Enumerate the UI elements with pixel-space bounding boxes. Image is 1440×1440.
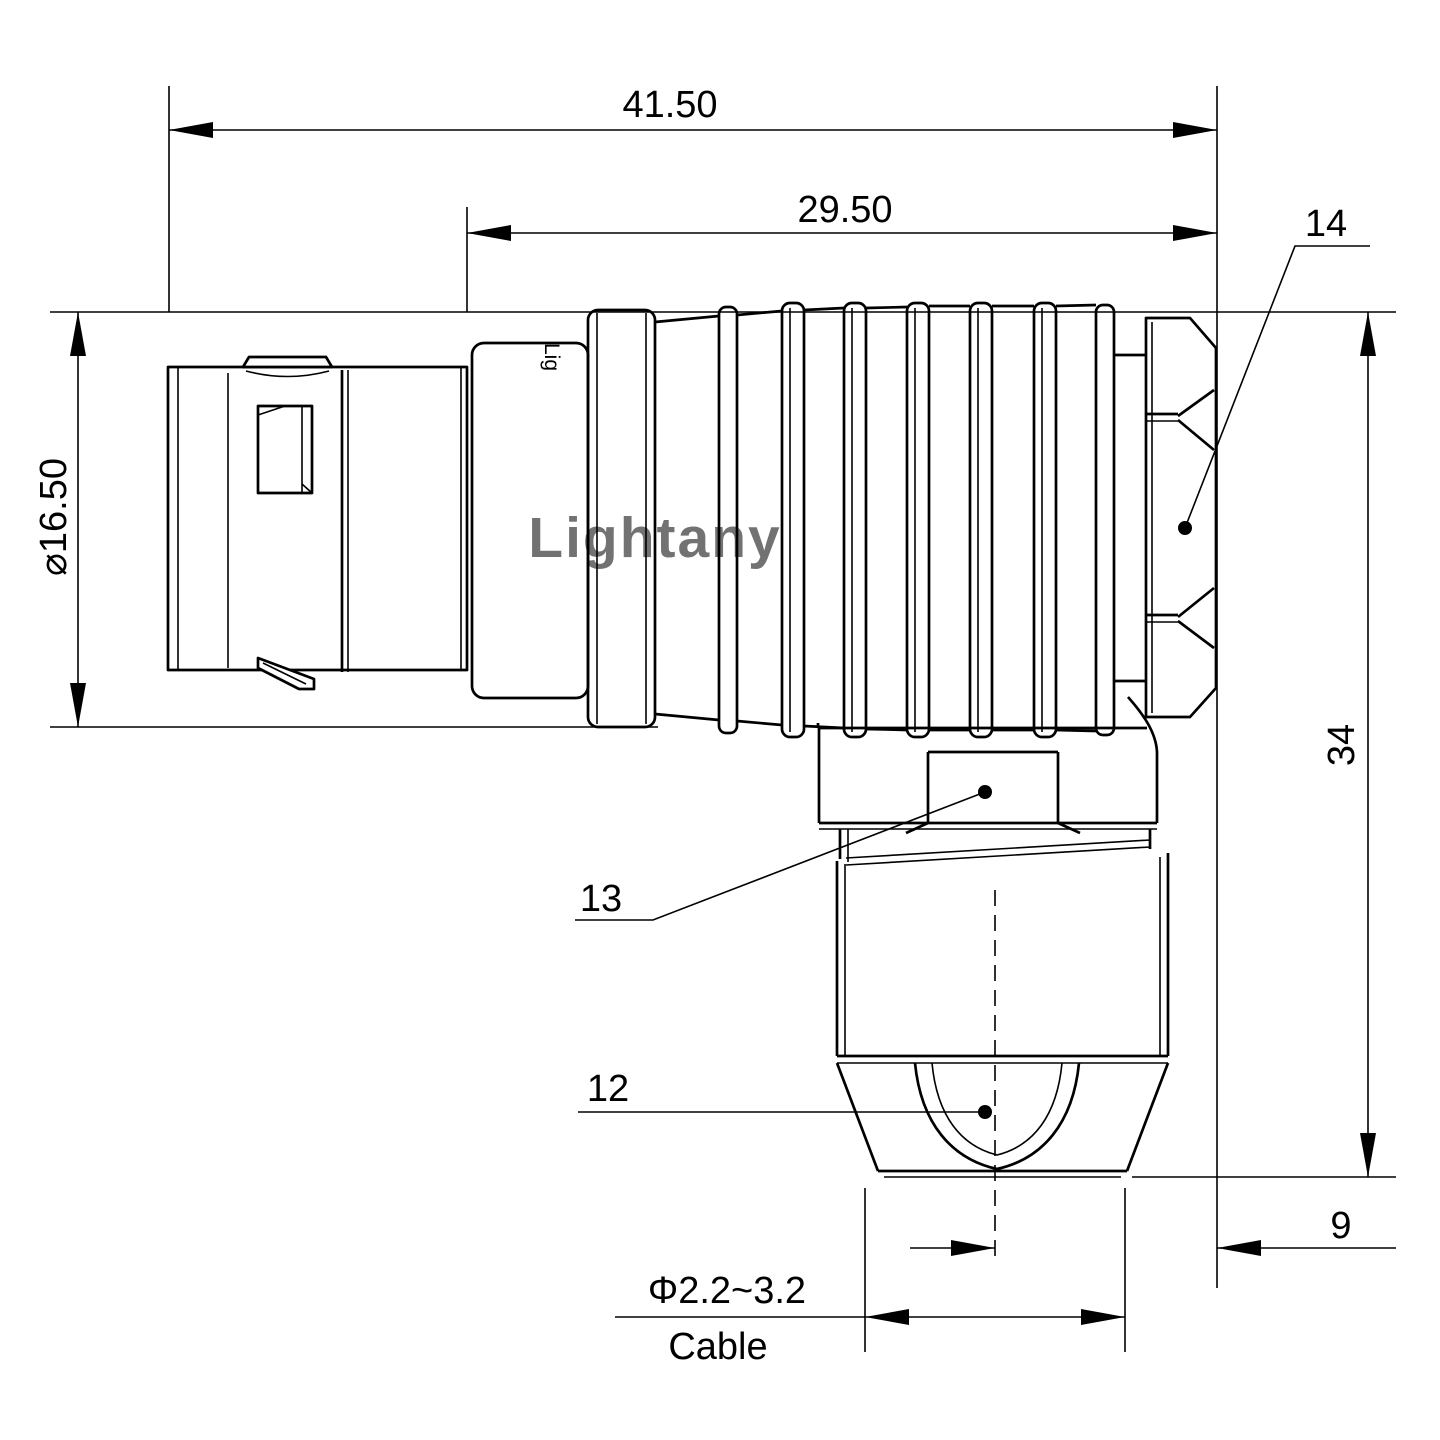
thread-groove <box>840 829 1150 865</box>
label-back-nut: 14 <box>1178 203 1370 535</box>
label-cable-collet: 12 <box>578 1068 992 1119</box>
svg-text:9: 9 <box>1330 1205 1351 1247</box>
elbow-lower-body <box>818 697 1168 1256</box>
cable-collet <box>837 1063 1168 1177</box>
svg-text:Cable: Cable <box>668 1326 767 1368</box>
dim-overall-height: 34 <box>1321 312 1376 1177</box>
svg-text:13: 13 <box>580 878 622 920</box>
coupling-shell <box>168 357 467 689</box>
back-nut-hex <box>1146 318 1216 717</box>
grip-ring <box>1034 303 1056 737</box>
technical-drawing-page: Lightany Lig <box>0 0 1440 1440</box>
dim-overall-length: 41.50 <box>169 84 1217 138</box>
svg-text:14: 14 <box>1305 203 1347 245</box>
dim-elbow-offset: 9 <box>910 1205 1396 1256</box>
connector-drawing: Lightany Lig <box>0 0 1440 1440</box>
connector-side-view: Lig <box>168 303 1216 1256</box>
grip-ring <box>907 303 929 737</box>
dim-insert-length: 29.50 <box>467 189 1217 241</box>
svg-text:29.50: 29.50 <box>797 189 892 231</box>
svg-text:12: 12 <box>587 1068 629 1110</box>
bayonet-lug <box>243 357 332 367</box>
dimensions: 41.50 29.50 ⌀16.50 34 <box>33 84 1396 1368</box>
svg-text:41.50: 41.50 <box>622 84 717 126</box>
dim-shell-diameter: ⌀16.50 <box>33 312 86 727</box>
keyway-window <box>258 406 312 493</box>
clamp-cylinder <box>837 853 1168 1063</box>
dim-cable-diameter: Φ2.2~3.2 Cable <box>615 1188 1125 1368</box>
svg-text:34: 34 <box>1321 724 1363 766</box>
svg-text:Φ2.2~3.2: Φ2.2~3.2 <box>648 1270 806 1312</box>
brand-mark-text: Lig <box>540 343 563 371</box>
spanner-flat-face <box>906 752 1080 833</box>
grip-ring <box>970 303 992 737</box>
grip-ring <box>782 303 804 737</box>
svg-text:⌀16.50: ⌀16.50 <box>33 458 75 576</box>
grip-ring <box>844 303 866 737</box>
